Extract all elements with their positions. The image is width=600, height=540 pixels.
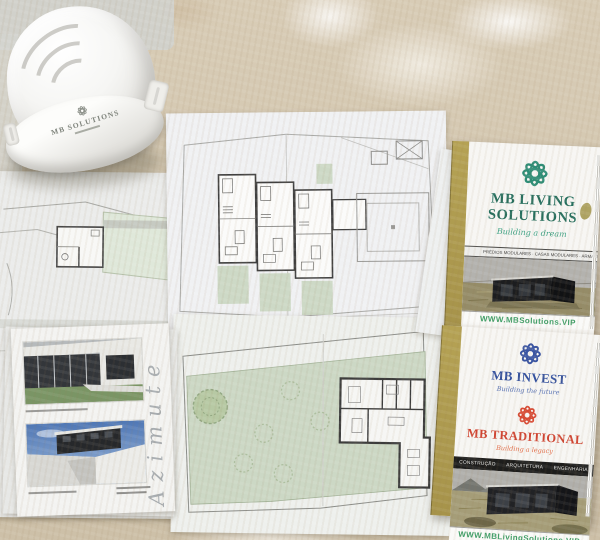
render-caption-line [28, 491, 76, 495]
central-floorplan-drawing [166, 111, 448, 339]
desk-photo: Azimute MB LIVING SOLUTIONS Building a d… [0, 0, 600, 540]
site-plan-sheet [170, 314, 453, 536]
handwritten-note: Azimute [139, 326, 169, 507]
render-aerial-view [26, 420, 146, 486]
site-plan-drawing [170, 314, 453, 536]
brochure-mb-invest-traditional: MB INVEST Building the future MB TRADITI… [430, 325, 600, 524]
brand-tagline: Building a dream [465, 225, 598, 240]
modular-house-photo [450, 468, 593, 534]
central-floorplan-sheet [166, 111, 448, 339]
render-caption-line [26, 408, 88, 412]
hard-hat: MB SOLUTIONS [0, 0, 176, 192]
render-ground-view [23, 338, 143, 404]
page-footnote-line [117, 491, 147, 494]
renders-page: Azimute [11, 323, 175, 516]
modular-house-photo [462, 256, 597, 316]
brochure-mb-living-solutions: MB LIVING SOLUTIONS Building a dream PRÉ… [444, 141, 600, 337]
knot-logo-icon [467, 154, 600, 194]
